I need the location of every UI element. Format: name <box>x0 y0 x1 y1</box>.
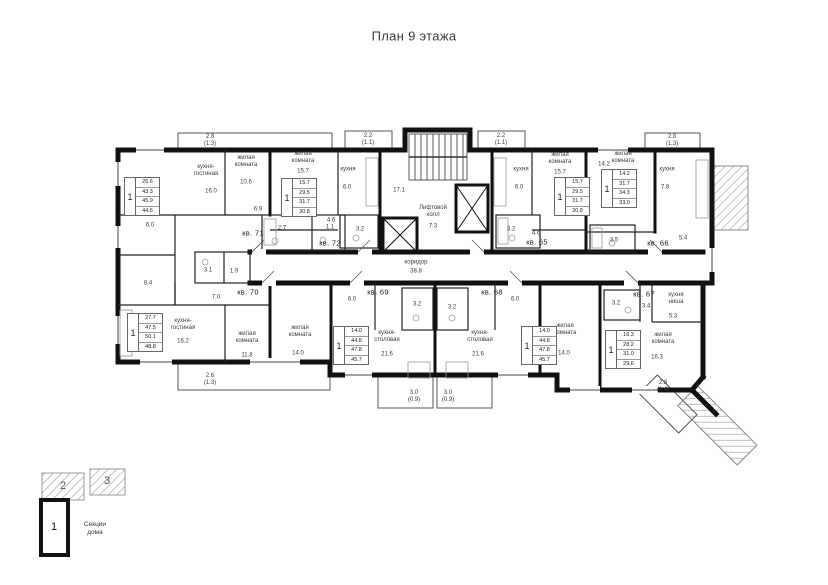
area-value: 34.3 <box>613 189 636 199</box>
area-table-kv68: 1 14.0 44.8 47.8 45.7 <box>521 326 557 365</box>
floorplan-page: План 9 этажа <box>0 0 828 585</box>
apartment-label-kv69: кв. 69 <box>367 288 389 297</box>
room-count: 1 <box>555 178 566 215</box>
legend-section-2-label: 2 <box>60 480 66 492</box>
area-value: 15.7 <box>566 178 589 188</box>
staircase <box>409 134 467 180</box>
area-value: 29.6 <box>617 360 640 369</box>
apartment-label-kv72: кв. 72 <box>319 239 341 248</box>
area-value: 31.7 <box>566 197 589 207</box>
room-count: 1 <box>125 178 136 215</box>
area-value: 47.5 <box>139 324 162 334</box>
apartment-label-kv67: кв. 67 <box>633 290 655 299</box>
doors <box>252 240 662 286</box>
area-value: 31.7 <box>293 198 316 208</box>
apartment-label-kv66: кв. 66 <box>647 239 669 248</box>
area-value: 29.5 <box>566 188 589 198</box>
area-value: 44.6 <box>136 207 159 216</box>
room-count: 1 <box>282 179 293 216</box>
apartment-label-kv65: кв. 65 <box>526 238 548 247</box>
elevator-shafts <box>383 185 488 252</box>
area-value: 16.3 <box>617 331 640 341</box>
floorplan-drawing <box>0 0 828 585</box>
legend-shapes <box>41 469 125 555</box>
area-value: 45.7 <box>345 356 368 365</box>
area-value: 45.7 <box>533 356 556 365</box>
area-value: 30.8 <box>293 208 316 217</box>
room-count: 1 <box>602 170 613 207</box>
area-value: 28.2 <box>617 341 640 351</box>
area-value: 26.6 <box>136 178 159 188</box>
room-count: 1 <box>128 314 139 351</box>
area-value: 47.8 <box>533 346 556 356</box>
area-value: 33.0 <box>613 199 636 208</box>
legend-section-1-label: 1 <box>51 521 57 533</box>
area-value: 14.0 <box>345 327 368 337</box>
adjacent-section-bottom <box>678 386 757 465</box>
area-table-kv66: 1 14.2 31.7 34.3 33.0 <box>601 169 637 208</box>
area-value: 31.0 <box>617 350 640 360</box>
area-value: 43.3 <box>136 188 159 198</box>
area-table-kv69: 1 14.0 44.8 47.8 45.7 <box>333 326 369 365</box>
area-value: 50.1 <box>139 333 162 343</box>
area-value: 44.8 <box>345 337 368 347</box>
area-value: 27.7 <box>139 314 162 324</box>
area-table-kv71: 1 26.6 43.3 45.9 44.6 <box>124 177 160 216</box>
area-value: 30.8 <box>566 207 589 216</box>
area-value: 29.5 <box>293 189 316 199</box>
area-table-kv65: 1 15.7 29.5 31.7 30.8 <box>554 177 590 216</box>
area-table-kv67: 1 16.3 28.2 31.0 29.6 <box>605 330 641 369</box>
area-value: 45.9 <box>136 197 159 207</box>
legend-caption: Секции дома <box>84 521 106 537</box>
apartment-label-kv68: кв. 68 <box>481 288 503 297</box>
area-value: 14.2 <box>613 170 636 180</box>
room-count: 1 <box>522 327 533 364</box>
adjacent-section-top <box>714 166 748 230</box>
area-table-kv70: 1 27.7 47.5 50.1 48.8 <box>127 313 163 352</box>
area-value: 47.8 <box>345 346 368 356</box>
apartment-label-kv71: кв. 71 <box>242 229 264 238</box>
room-count: 1 <box>606 331 617 368</box>
area-table-kv72: 1 15.7 29.5 31.7 30.8 <box>281 178 317 217</box>
area-value: 31.7 <box>613 180 636 190</box>
room-count: 1 <box>334 327 345 364</box>
area-value: 14.0 <box>533 327 556 337</box>
apartment-label-kv70: кв. 70 <box>237 288 259 297</box>
area-value: 44.8 <box>533 337 556 347</box>
area-value: 15.7 <box>293 179 316 189</box>
area-value: 48.8 <box>139 343 162 352</box>
legend-section-3-label: 3 <box>104 475 110 487</box>
